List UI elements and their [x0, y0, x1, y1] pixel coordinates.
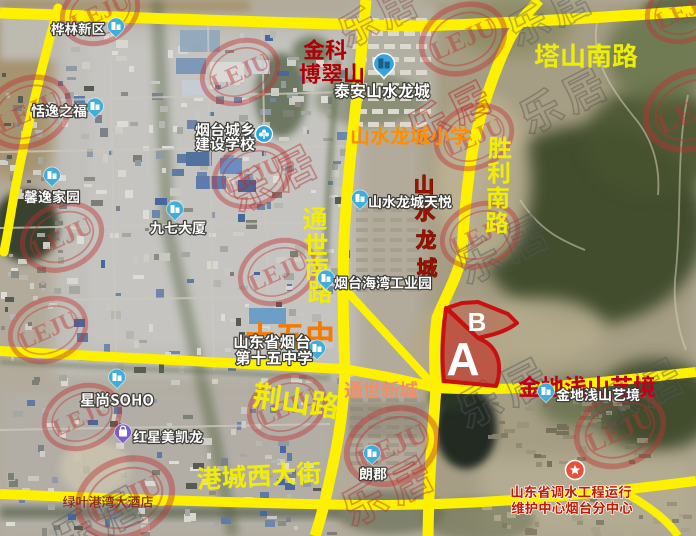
svg-text:B: B [468, 307, 487, 337]
svg-text:A: A [446, 333, 479, 385]
